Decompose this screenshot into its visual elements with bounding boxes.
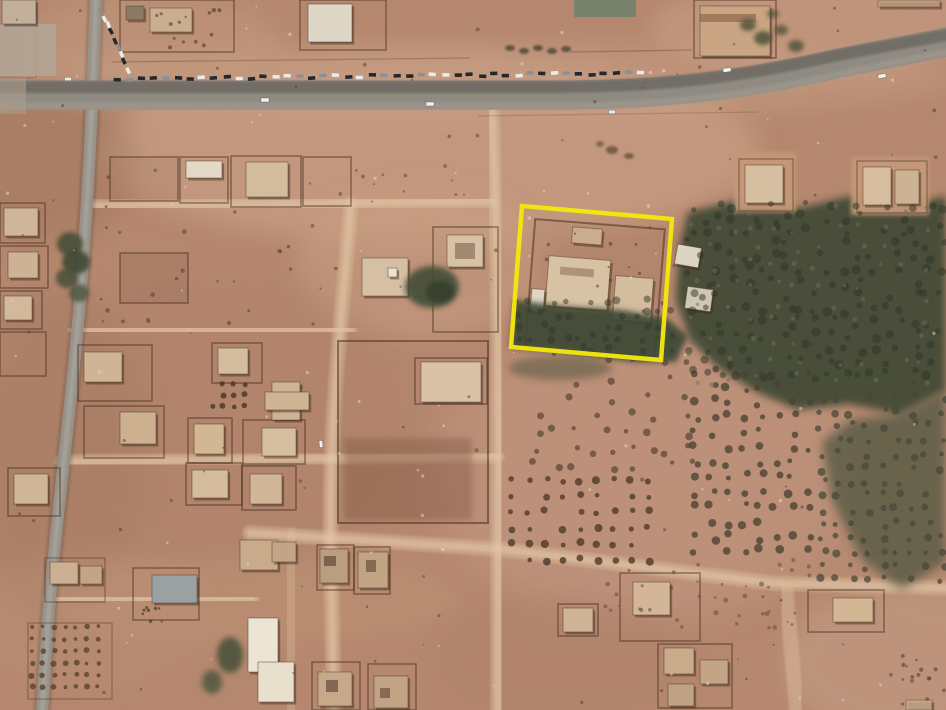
parked-car [380,74,387,78]
parked-car [114,78,121,82]
parked-car [515,74,522,78]
parked-car [490,71,497,75]
car [319,440,323,447]
parked-car [248,77,255,81]
parked-car [526,71,533,75]
parked-car [332,73,339,77]
parked-car [187,77,194,81]
parked-car [575,72,582,76]
parked-car [296,74,303,78]
parked-car [588,73,595,77]
parked-car [551,71,558,75]
parked-car [162,76,169,80]
parked-car [126,78,133,82]
parked-car [319,73,326,77]
parked-car [259,74,266,78]
parked-car [272,75,279,79]
parked-car [224,75,231,79]
parked-car [538,71,545,75]
parked-car [613,71,620,75]
parked-car [599,71,606,75]
car [426,102,434,106]
parked-car [479,74,486,78]
parked-car [308,76,315,80]
satellite-image [0,0,946,710]
parked-car [406,74,413,78]
parked-car [345,75,352,79]
parked-car [236,77,243,81]
parked-car [502,74,509,78]
parked-car [369,73,376,77]
scene-root [0,0,946,710]
parked-car [429,72,436,76]
parked-car [197,75,204,79]
parked-car [210,76,217,80]
parked-car [637,71,644,75]
car [261,98,269,102]
parked-car [417,73,424,77]
parked-car [138,76,145,80]
parked-car [563,71,570,75]
parked-car [625,70,632,74]
car [723,67,731,72]
parked-car [465,72,472,76]
parked-car [150,76,157,80]
parked-car [442,73,449,77]
satellite-canvas [0,0,946,710]
parked-car [455,73,462,77]
car [65,77,72,81]
parked-car [284,74,291,78]
parked-car [356,76,363,80]
parked-car [394,74,401,78]
car [608,110,615,114]
parked-car [175,76,182,80]
